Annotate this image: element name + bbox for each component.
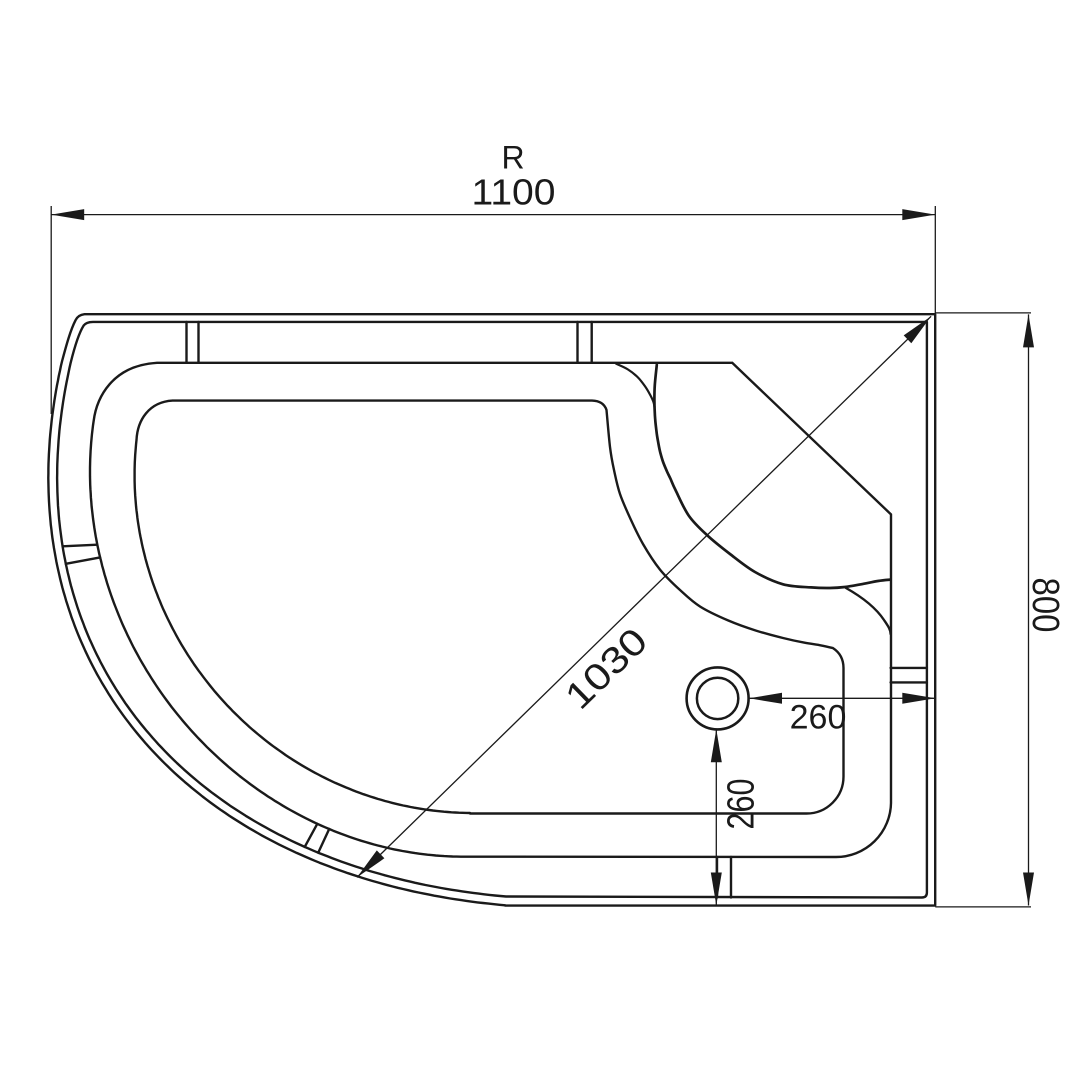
svg-text:260: 260 bbox=[790, 698, 847, 736]
svg-text:R: R bbox=[501, 140, 524, 176]
svg-text:260: 260 bbox=[720, 779, 762, 830]
svg-text:1100: 1100 bbox=[472, 172, 556, 213]
svg-text:800: 800 bbox=[1024, 578, 1066, 633]
